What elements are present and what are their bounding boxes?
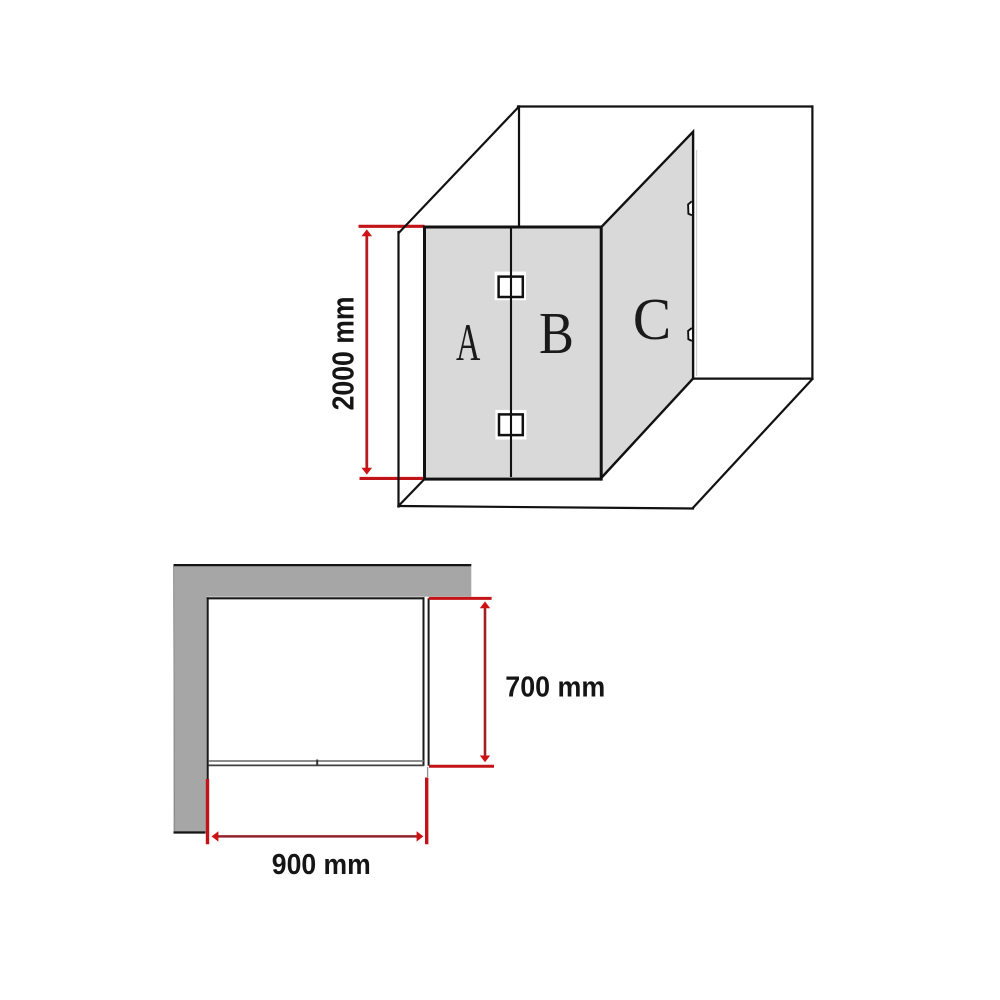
svg-text:700 mm: 700 mm [505,672,605,704]
svg-text:B: B [539,301,574,367]
svg-text:900 mm: 900 mm [272,849,371,881]
svg-text:C: C [633,286,671,352]
svg-text:A: A [456,314,480,372]
svg-text:2000 mm: 2000 mm [326,296,361,410]
